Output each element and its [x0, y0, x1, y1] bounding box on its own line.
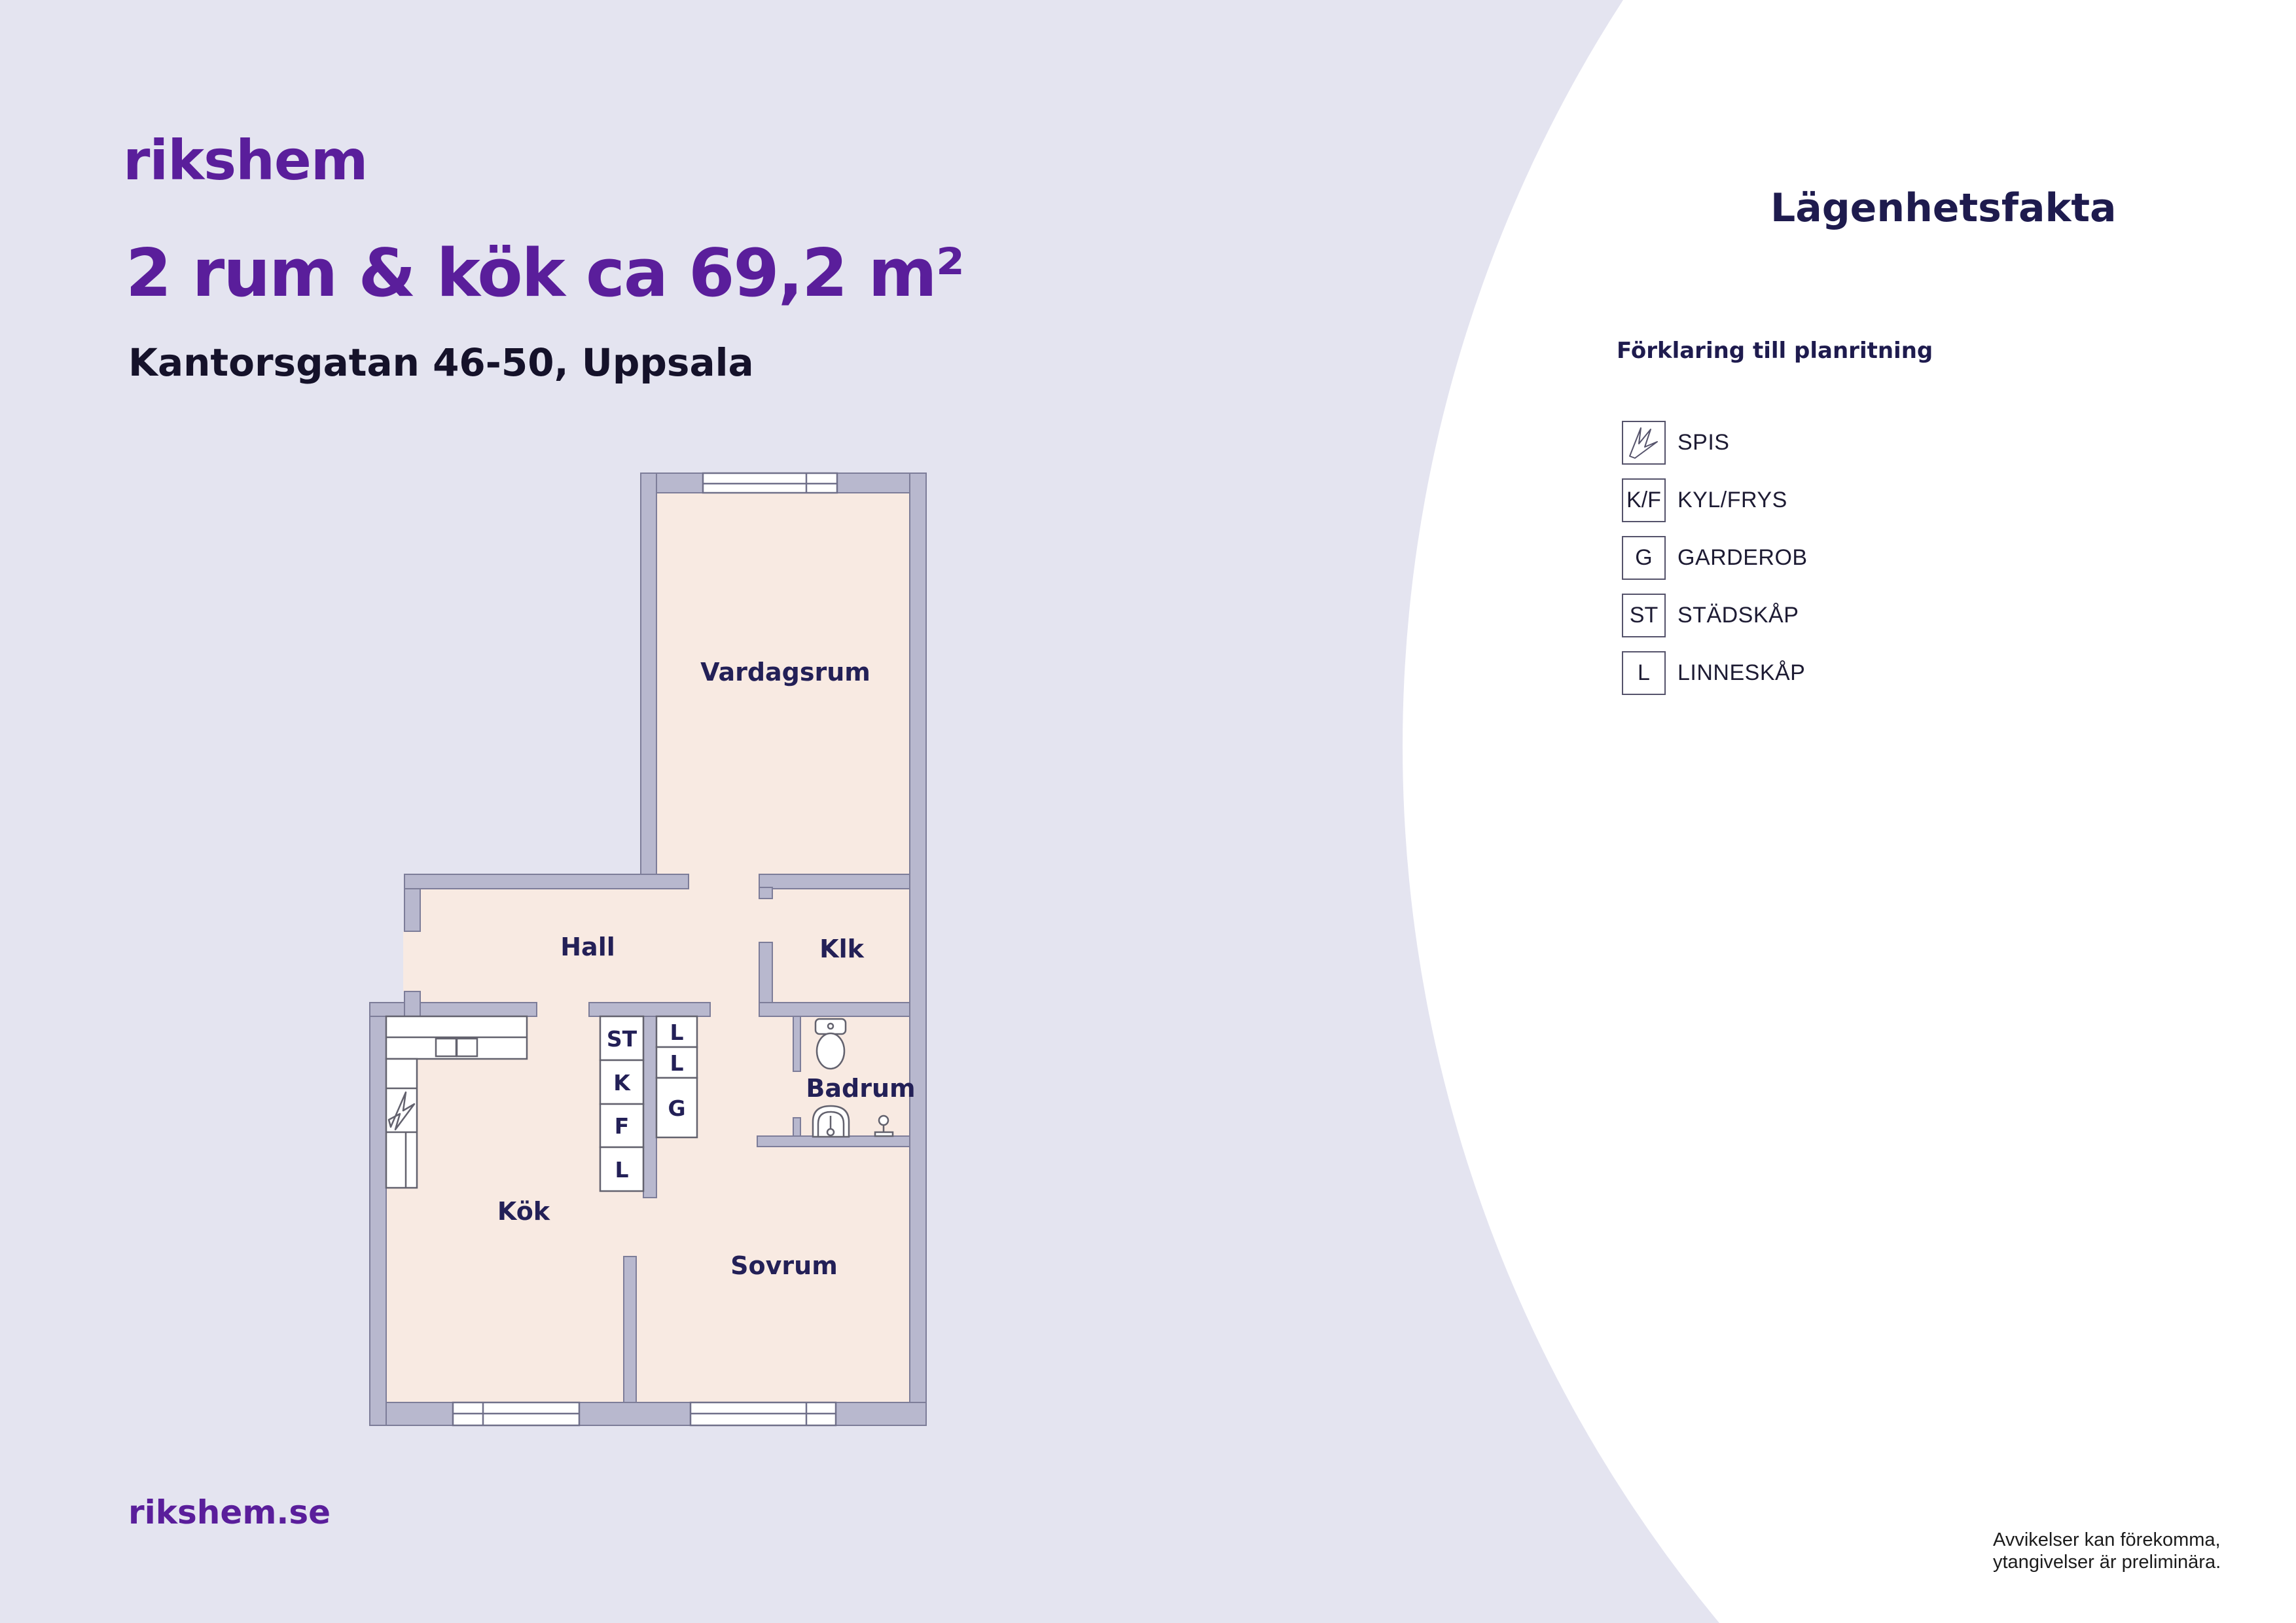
window-sovrum — [691, 1402, 836, 1425]
window-kok — [453, 1402, 579, 1425]
toilet-icon — [816, 1019, 846, 1069]
sink-icon — [813, 1106, 849, 1137]
floorplan: Vardagsrum Hall Klk Badrum Kök Sovrum ST… — [0, 0, 2296, 1623]
page: rikshem 2 rum & kök ca 69,2 m² Kantorsga… — [0, 0, 2296, 1623]
room-label-hall: Hall — [560, 933, 615, 961]
disclaimer-line-2: ytangivelser är preliminära. — [1993, 1551, 2221, 1573]
closet-label-st: ST — [607, 1026, 637, 1052]
closet-label-l3: L — [670, 1050, 683, 1076]
closet-label-f: F — [615, 1113, 630, 1139]
room-label-kok: Kök — [497, 1197, 550, 1226]
window-top — [703, 473, 837, 493]
closet-label-l1: L — [615, 1157, 628, 1183]
website-link: rikshem.se — [128, 1493, 331, 1531]
content-layer: rikshem 2 rum & kök ca 69,2 m² Kantorsga… — [0, 0, 2296, 1623]
room-label-vardagsrum: Vardagsrum — [700, 658, 870, 687]
closet-label-g: G — [668, 1096, 685, 1121]
room-label-badrum: Badrum — [806, 1074, 915, 1103]
room-label-sovrum: Sovrum — [730, 1251, 838, 1280]
disclaimer-line-1: Avvikelser kan förekomma, — [1993, 1529, 2221, 1551]
closet-label-k: K — [613, 1070, 631, 1096]
closet-label-l2: L — [670, 1020, 683, 1045]
room-label-klk: Klk — [819, 935, 864, 963]
disclaimer-text: Avvikelser kan förekomma, ytangivelser ä… — [1993, 1529, 2221, 1573]
